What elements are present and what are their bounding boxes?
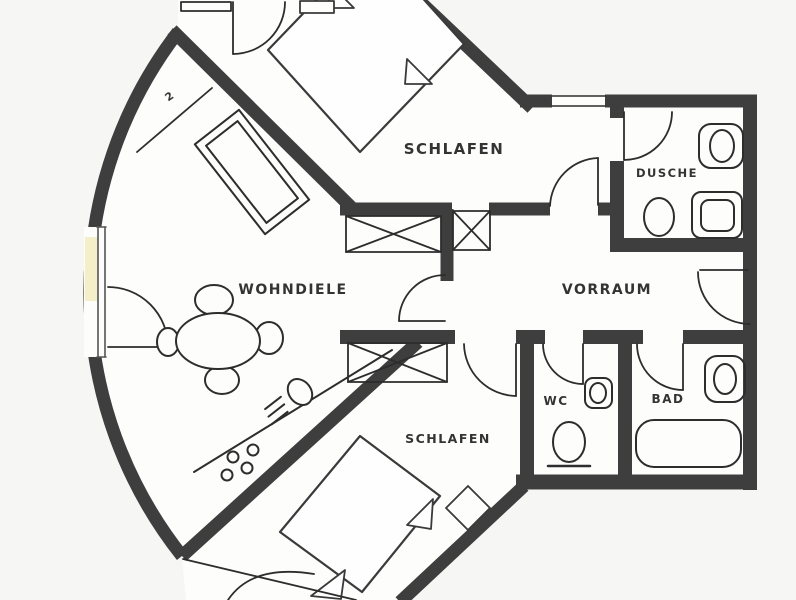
chair	[205, 366, 239, 394]
label-bedroom-bottom: SCHLAFEN	[405, 431, 491, 446]
planter	[181, 2, 231, 11]
dining-table	[176, 313, 260, 369]
label-bath: BAD	[652, 392, 685, 406]
label-living: WOHNDIELE	[238, 282, 347, 298]
label-bedroom-top: SCHLAFEN	[404, 140, 505, 158]
floor-plan-page: SCHLAFEN WOHNDIELE VORRAUM DUSCHE WC BAD…	[0, 0, 796, 600]
window-tint	[85, 237, 98, 301]
label-hall: VORRAUM	[562, 282, 652, 298]
floor-plan-canvas: SCHLAFEN WOHNDIELE VORRAUM DUSCHE WC BAD…	[0, 0, 796, 600]
label-wc: WC	[543, 394, 568, 408]
nightstand	[300, 1, 334, 13]
chair	[195, 285, 233, 315]
label-shower-room: DUSCHE	[636, 166, 698, 180]
